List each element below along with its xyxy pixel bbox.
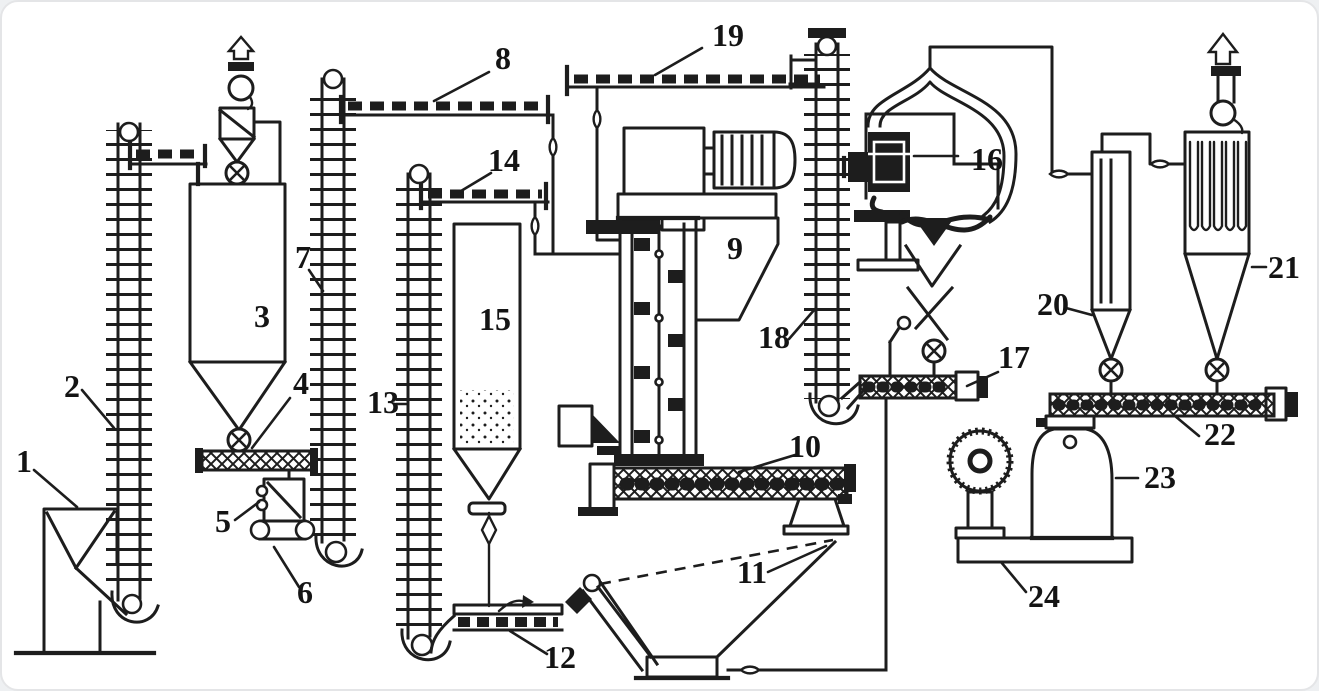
label-20: 20 [1037,286,1069,322]
label-3: 3 [254,298,270,334]
screw-feeder-4 [195,448,318,479]
label-16: 16 [971,141,1003,177]
scale-dial [950,431,1010,538]
label-7: 7 [295,239,311,275]
label-14: 14 [488,142,520,178]
label-22: 22 [1204,416,1236,452]
process-flow-diagram: 1 2 3 4 5 6 7 8 9 10 11 12 13 14 15 16 1… [2,2,1319,691]
label-5: 5 [215,503,231,539]
bag-filter-21 [1185,34,1249,394]
label-13: 13 [367,384,399,420]
unit-16 [844,47,1088,286]
label-8: 8 [495,40,511,76]
cyclone-20 [1088,134,1185,394]
conveyor-8 [341,97,550,122]
label-21: 21 [1268,249,1300,285]
bucket-elevator-7 [310,70,362,566]
label-9: 9 [727,230,743,266]
silo-3 [190,184,285,430]
label-11: 11 [737,554,767,590]
screenshot-stage: 1 2 3 4 5 6 7 8 9 10 11 12 13 14 15 16 1… [0,0,1319,691]
conveyor-19 [567,67,824,94]
label-1: 1 [16,443,32,479]
inclined-feeder [565,575,657,670]
label-12: 12 [544,639,576,675]
mill-9 [559,128,795,466]
label-6: 6 [297,574,313,610]
label-17: 17 [998,339,1030,375]
label-19: 19 [712,17,744,53]
label-23: 23 [1144,459,1176,495]
silo-filter-unit [220,37,280,184]
bin-15 [454,224,520,606]
diagram-card: 1 2 3 4 5 6 7 8 9 10 11 12 13 14 15 16 1… [0,0,1319,691]
label-2: 2 [64,368,80,404]
bucket-elevator-13 [396,165,450,660]
label-15: 15 [479,301,511,337]
drum-6 [251,521,314,539]
feeder-mechanism-5 [257,479,304,521]
discharge-chute-16 [890,288,952,376]
label-24: 24 [1028,578,1060,614]
bag-23 [1032,416,1112,538]
label-10: 10 [789,428,821,464]
valve-over-17 [923,340,945,376]
platform-scale-24 [958,538,1132,562]
rotary-valve-4 [228,429,250,451]
label-4: 4 [293,365,309,401]
label-18: 18 [758,319,790,355]
screw-conveyor-10 [578,464,856,534]
